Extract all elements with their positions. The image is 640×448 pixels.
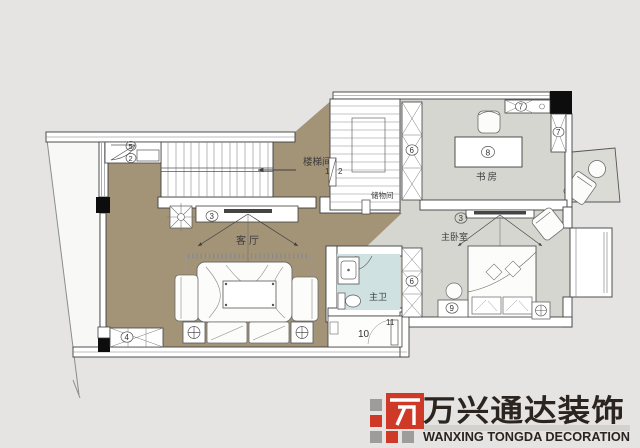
bedroom-wardrobe: 6 bbox=[402, 248, 422, 317]
pillow-left bbox=[472, 297, 501, 314]
ottoman-left bbox=[207, 322, 247, 343]
floorplan-image: 楼梯间 1 2 储物间 5 2 3 bbox=[0, 0, 640, 448]
column-left bbox=[96, 197, 110, 213]
coffee-table bbox=[223, 281, 276, 308]
column-top-right bbox=[550, 91, 572, 114]
side-table-right bbox=[291, 322, 313, 343]
marker-7-side: 7 bbox=[556, 128, 561, 137]
utility-room: 10 11 bbox=[328, 316, 402, 347]
bedroom-label: 主卧室 bbox=[441, 231, 468, 242]
living-label: 客厅 bbox=[236, 234, 262, 247]
living-tv bbox=[224, 209, 272, 213]
bedroom-tv bbox=[474, 211, 526, 215]
ottoman-right bbox=[249, 322, 289, 343]
entry-cabinet bbox=[137, 150, 159, 161]
marker-3-bedroom: 3 bbox=[459, 214, 464, 223]
marker-11: 11 bbox=[386, 318, 395, 327]
plant-box bbox=[167, 203, 195, 231]
storage-label: 储物间 bbox=[371, 190, 394, 200]
marker-6-bedroom: 6 bbox=[410, 277, 415, 286]
side-table-left bbox=[183, 322, 205, 343]
marker-6-study: 6 bbox=[410, 146, 415, 155]
study-wardrobe: 6 bbox=[402, 102, 422, 200]
logo: 万兴通达装饰 WANXING TONGDA DECORATION bbox=[370, 393, 630, 444]
low-cabinet: 4 bbox=[110, 328, 163, 347]
floorplan-page: 楼梯间 1 2 储物间 5 2 3 bbox=[0, 0, 640, 448]
marker-4: 4 bbox=[125, 333, 130, 342]
marker-3-living: 3 bbox=[210, 212, 215, 221]
bath-label: 主卫 bbox=[369, 291, 387, 302]
bed bbox=[468, 246, 536, 317]
top-cabinet: 7 bbox=[505, 100, 550, 113]
entry: 5 2 bbox=[105, 141, 161, 163]
column-bottom-left bbox=[98, 338, 110, 352]
utility-fixture bbox=[330, 322, 338, 334]
marker-2-stair: 2 bbox=[338, 167, 343, 176]
marker-9: 9 bbox=[450, 304, 455, 313]
wall-right-stub-a bbox=[563, 207, 572, 228]
marker-5: 5 bbox=[129, 142, 133, 151]
floor-unit bbox=[532, 302, 550, 319]
dresser-stool bbox=[446, 283, 462, 299]
marker-1: 1 bbox=[325, 167, 330, 176]
vanity bbox=[338, 257, 359, 284]
logo-title-cn: 万兴通达装饰 bbox=[423, 395, 625, 428]
marker-2-entry: 2 bbox=[129, 154, 133, 163]
armchair-left bbox=[175, 275, 198, 321]
pier-bottom-left bbox=[98, 327, 110, 338]
balcony-table bbox=[589, 161, 606, 178]
desk-chair bbox=[478, 111, 500, 133]
marker-10: 10 bbox=[358, 329, 370, 340]
study-label: 书房 bbox=[476, 171, 499, 183]
bay-window bbox=[570, 228, 612, 297]
logo-title-en: WANXING TONGDA DECORATION bbox=[423, 430, 630, 444]
wall-bedroom-top bbox=[420, 200, 567, 210]
storage-door bbox=[362, 200, 370, 214]
pillow-right bbox=[503, 297, 532, 314]
armchair-right bbox=[292, 277, 318, 321]
master-bath: 主卫 bbox=[337, 254, 400, 310]
side-cabinet: 7 bbox=[551, 114, 566, 152]
marker-8: 8 bbox=[486, 148, 491, 158]
marker-7-top: 7 bbox=[519, 103, 524, 112]
